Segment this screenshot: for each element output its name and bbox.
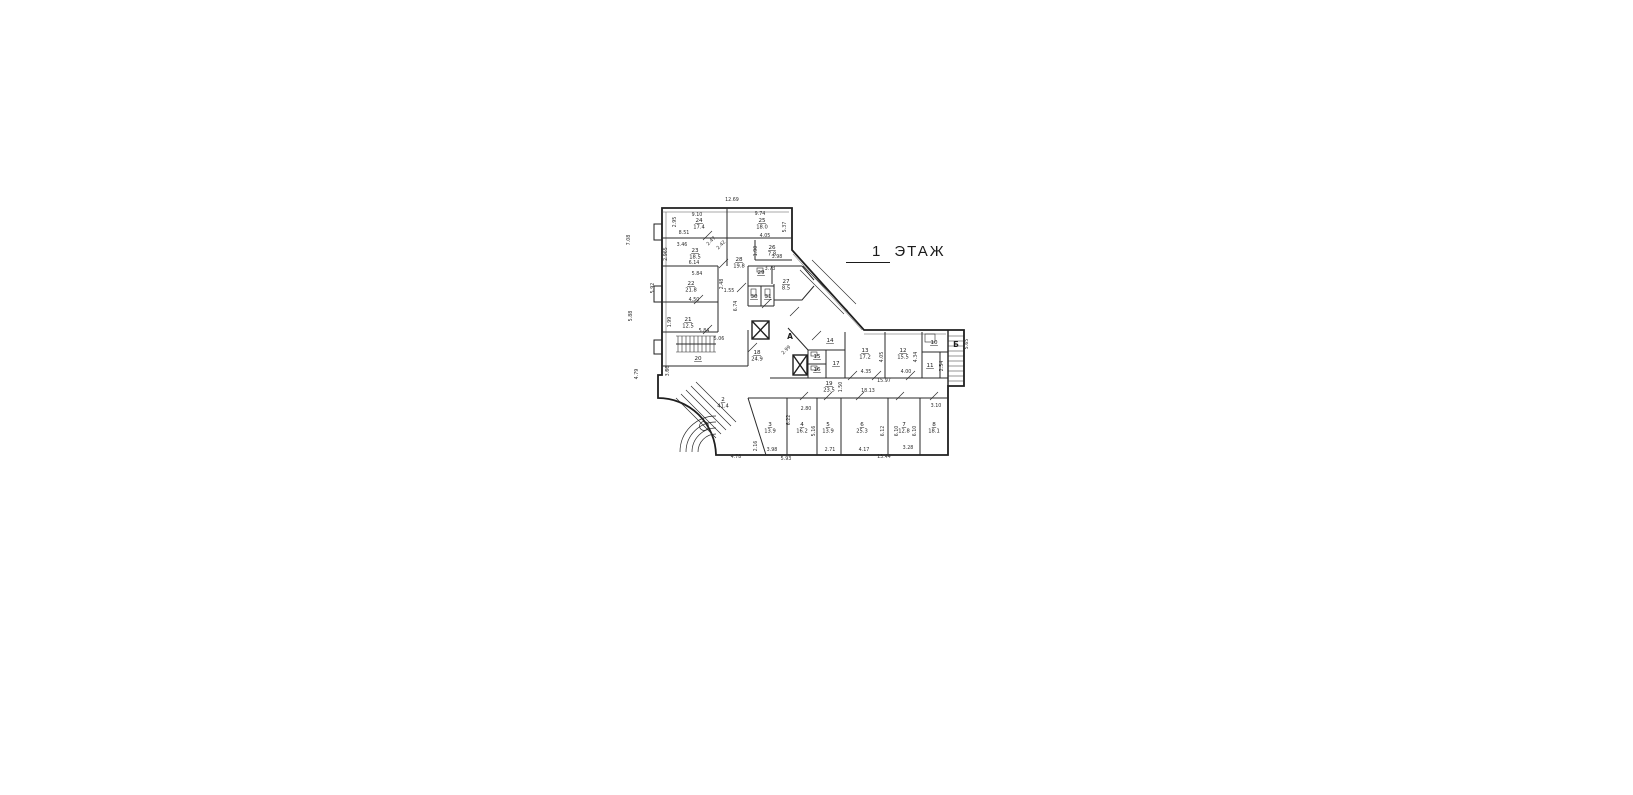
dimension-label: 6.12 <box>880 426 886 437</box>
dimension-label: 2.48 <box>719 279 725 290</box>
room-number: 20 <box>694 356 702 362</box>
room-area: 12.5 <box>682 324 694 330</box>
dimension-label: 9.10 <box>692 212 703 218</box>
floor-number: 1 <box>846 243 890 263</box>
room-number: 18 <box>753 350 761 356</box>
dimension-label: 5.84 <box>699 328 710 334</box>
room-area: 15.5 <box>897 355 909 361</box>
dimension-label: 3.98 <box>767 447 778 453</box>
dimension-label: 4.00 <box>901 369 912 375</box>
room-number: 16 <box>813 367 821 373</box>
dimension-label: 9.74 <box>755 211 766 217</box>
room-area: 19.8 <box>733 264 745 270</box>
dimension-label: 5.84 <box>692 271 703 277</box>
room-number: 8 <box>932 422 936 428</box>
dimension-label: 13.44 <box>877 454 891 460</box>
dimension-label: 1.90 <box>753 246 759 257</box>
room-area: 8.5 <box>782 286 790 292</box>
dimension-label: 6.10 <box>912 426 918 437</box>
floor-word: ЭТАЖ <box>894 243 945 260</box>
room-number: 22 <box>687 281 694 287</box>
entrance-steps <box>676 382 736 452</box>
dimension-label: 4.05 <box>879 352 885 363</box>
dimension-label: 5.06 <box>714 336 725 342</box>
dimension-label: 12.69 <box>725 197 739 203</box>
dimension-label: 3.10 <box>931 403 942 409</box>
dimension-label: 15.97 <box>877 378 891 384</box>
room-number: 10 <box>930 340 938 346</box>
stair-left-treads <box>676 336 716 352</box>
room-number: 23 <box>691 248 699 254</box>
room-number: 14 <box>826 338 834 344</box>
room-area: 24.9 <box>751 357 763 363</box>
room-area: 16.2 <box>796 429 808 435</box>
room-area: 41.4 <box>717 404 729 410</box>
dimension-label: 2.80 <box>801 406 812 412</box>
room-area: 18.1 <box>928 429 940 435</box>
dimension-label: 1.99 <box>667 317 673 328</box>
room-number: 26 <box>768 245 776 251</box>
dimension-label: 18.13 <box>861 388 875 394</box>
elevator-shafts <box>752 321 807 375</box>
room-area: 18.5 <box>689 255 701 261</box>
room-number: 2 <box>721 397 725 403</box>
room-number: 25 <box>758 218 766 224</box>
dimension-label: 1.55 <box>724 288 735 294</box>
room-number: 24 <box>695 218 703 224</box>
dimension-label: 2.71 <box>825 447 836 453</box>
floor-title: 1ЭТАЖ <box>846 243 946 263</box>
dimension-label: 8.51 <box>679 230 690 236</box>
room-number: 3 <box>768 422 772 428</box>
floor-plan-drawing: 2417.42518.02318.5267.82819.82221.8278.5… <box>0 0 1633 795</box>
dimension-label: 1.50 <box>838 382 844 393</box>
dimension-label: 2.16 <box>753 441 759 452</box>
dimension-label: 2.42 <box>715 239 727 251</box>
room-number: 11 <box>926 363 934 369</box>
dimension-label: 3.73 <box>765 266 776 272</box>
room-number: 13 <box>861 348 869 354</box>
dimension-label: 5.92 <box>650 283 656 294</box>
room-area: 17.4 <box>693 225 705 231</box>
dimension-label: 5.88 <box>628 311 634 322</box>
dimension-label: 7.08 <box>626 235 632 246</box>
room-number: 7 <box>902 422 906 428</box>
dimension-label: 4.79 <box>634 369 640 380</box>
dimension-label: 6.14 <box>689 260 700 266</box>
dimension-label: 2.965 <box>663 247 669 261</box>
dimension-label: 6.10 <box>894 426 900 437</box>
dimension-label: 3.98 <box>772 254 783 260</box>
dimension-label: 5.65 <box>964 339 970 350</box>
dimension-label: 4.78 <box>731 454 742 460</box>
dimension-label: 4.17 <box>859 447 870 453</box>
room-area: 13.9 <box>764 429 776 435</box>
dimension-label: 3.46 <box>677 242 688 248</box>
stairwell-letter: Б <box>953 340 959 349</box>
dimension-label: 2.95 <box>672 217 678 228</box>
room-area: 21.8 <box>685 288 697 294</box>
room-number: 19 <box>825 381 833 387</box>
room-number: 15 <box>813 354 821 360</box>
dimension-label: 6.74 <box>733 301 739 312</box>
dimension-label: 2.54 <box>939 361 945 372</box>
room-number: 21 <box>684 317 692 323</box>
dimension-label: 4.50 <box>689 297 700 303</box>
dimension-label: 5.37 <box>782 222 788 233</box>
dimension-label: 5.16 <box>811 426 817 437</box>
room-area: 23.5 <box>823 388 835 394</box>
dimension-label: 4.05 <box>760 233 771 239</box>
room-number: 4 <box>800 422 804 428</box>
dimension-label: 3.66 <box>665 366 671 377</box>
dimension-label: 6.22 <box>786 415 792 426</box>
dimension-label: 5.93 <box>781 456 792 462</box>
dimension-label: 2.99 <box>780 344 792 356</box>
dimension-label: 4.35 <box>861 369 872 375</box>
room-number: 30 <box>750 294 758 300</box>
dimension-label: 4.34 <box>913 352 919 363</box>
dimension-label: 3.28 <box>903 445 914 451</box>
room-area: 25.3 <box>856 429 868 435</box>
page: 2417.42518.02318.5267.82819.82221.8278.5… <box>0 0 1633 795</box>
room-area: 18.0 <box>756 225 768 231</box>
room-number: 28 <box>735 257 743 263</box>
stairwell-letter: А <box>787 332 793 341</box>
room-area: 13.9 <box>822 429 834 435</box>
room-number: 17 <box>832 361 840 367</box>
room-number: 27 <box>782 279 790 285</box>
dimension-label: 2.47 <box>705 235 717 247</box>
room-number: 5 <box>826 422 830 428</box>
room-number: 31 <box>764 294 772 300</box>
room-number: 12 <box>899 348 906 354</box>
room-number: 6 <box>860 422 864 428</box>
room-area: 17.2 <box>859 355 871 361</box>
